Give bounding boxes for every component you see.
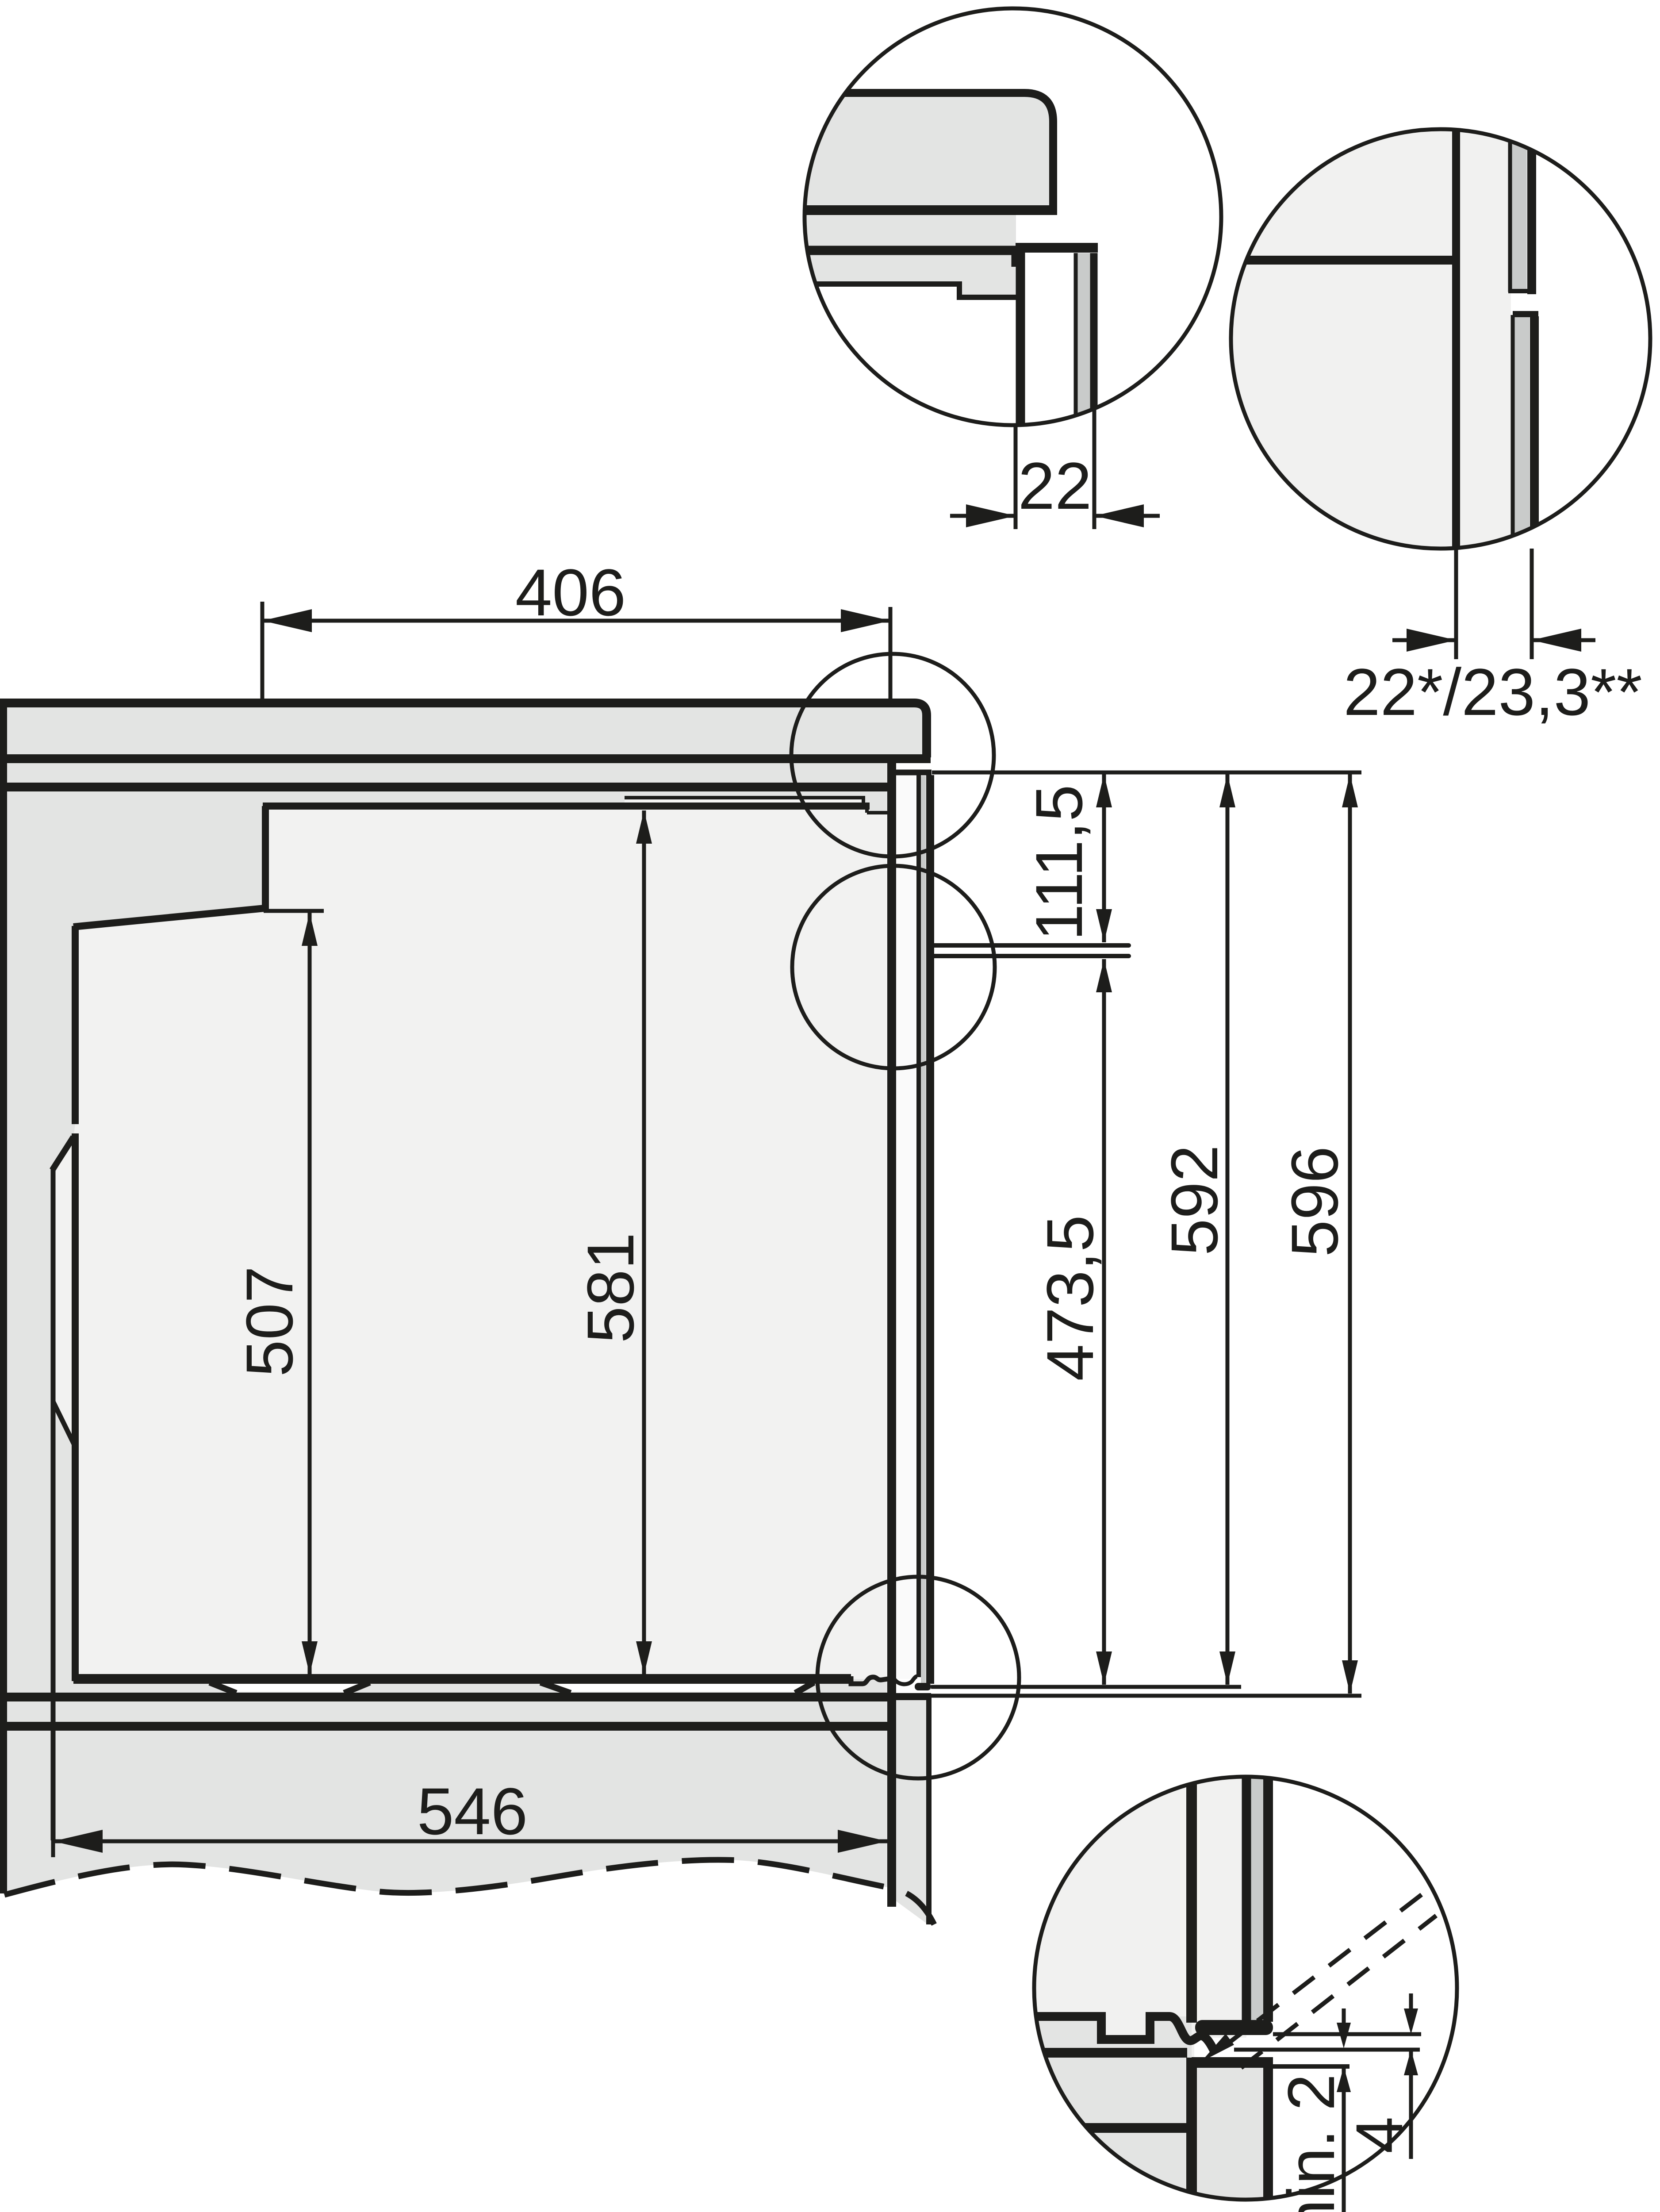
- svg-text:581: 581: [573, 1233, 648, 1343]
- svg-text:111,5: 111,5: [1022, 784, 1096, 941]
- svg-text:507: 507: [232, 1266, 307, 1377]
- svg-text:596: 596: [1277, 1146, 1352, 1257]
- svg-text:592: 592: [1157, 1145, 1231, 1256]
- svg-text:4: 4: [1342, 2116, 1416, 2153]
- svg-text:min. 2: min. 2: [1274, 2074, 1348, 2212]
- svg-text:22: 22: [1018, 449, 1092, 523]
- svg-text:22*/23,3**: 22*/23,3**: [1343, 655, 1642, 729]
- svg-text:473,5: 473,5: [1033, 1215, 1107, 1381]
- svg-text:406: 406: [515, 555, 626, 630]
- svg-text:546: 546: [417, 1774, 528, 1848]
